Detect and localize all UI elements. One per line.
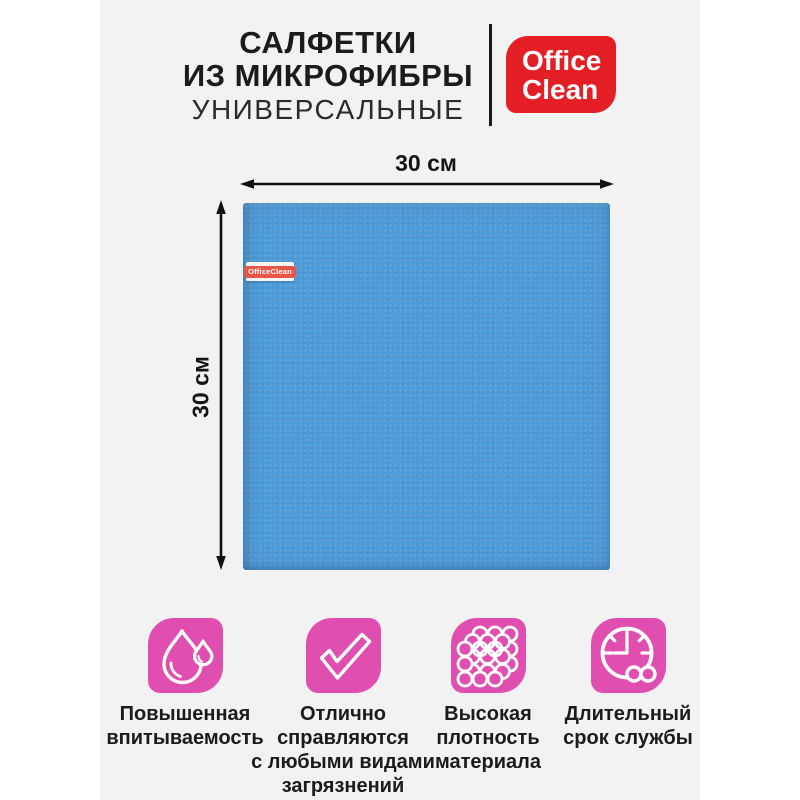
clock-infinity-icon xyxy=(591,618,666,693)
title-line-1: САЛФЕТКИ xyxy=(158,26,498,59)
cloth-tag-label: OfficeClean xyxy=(244,266,296,278)
feature-item-durability: Длительный срок службы xyxy=(513,618,743,750)
header-divider xyxy=(489,24,492,126)
height-dimension-label: 30 см xyxy=(188,356,215,418)
officeclean-logo: Office Clean xyxy=(506,36,616,113)
checkmark-icon xyxy=(306,618,381,693)
width-dimension-label: 30 см xyxy=(395,150,457,177)
cloth-tag: OfficeClean xyxy=(246,262,294,281)
logo-text-line-1: Office xyxy=(522,46,616,75)
title-line-2: ИЗ МИКРОФИБРЫ xyxy=(158,59,498,92)
height-arrow xyxy=(213,200,229,570)
product-infographic: САЛФЕТКИ ИЗ МИКРОФИБРЫ УНИВЕРСАЛЬНЫЕ Off… xyxy=(0,0,800,800)
logo-text-line-2: Clean xyxy=(522,75,616,104)
page-title: САЛФЕТКИ ИЗ МИКРОФИБРЫ УНИВЕРСАЛЬНЫЕ xyxy=(158,26,498,126)
width-arrow xyxy=(240,176,614,192)
droplet-icon xyxy=(148,618,223,693)
feature-label: Длительный срок службы xyxy=(563,702,693,750)
title-subtitle: УНИВЕРСАЛЬНЫЕ xyxy=(158,94,498,126)
microfiber-cloth-image xyxy=(243,203,610,570)
